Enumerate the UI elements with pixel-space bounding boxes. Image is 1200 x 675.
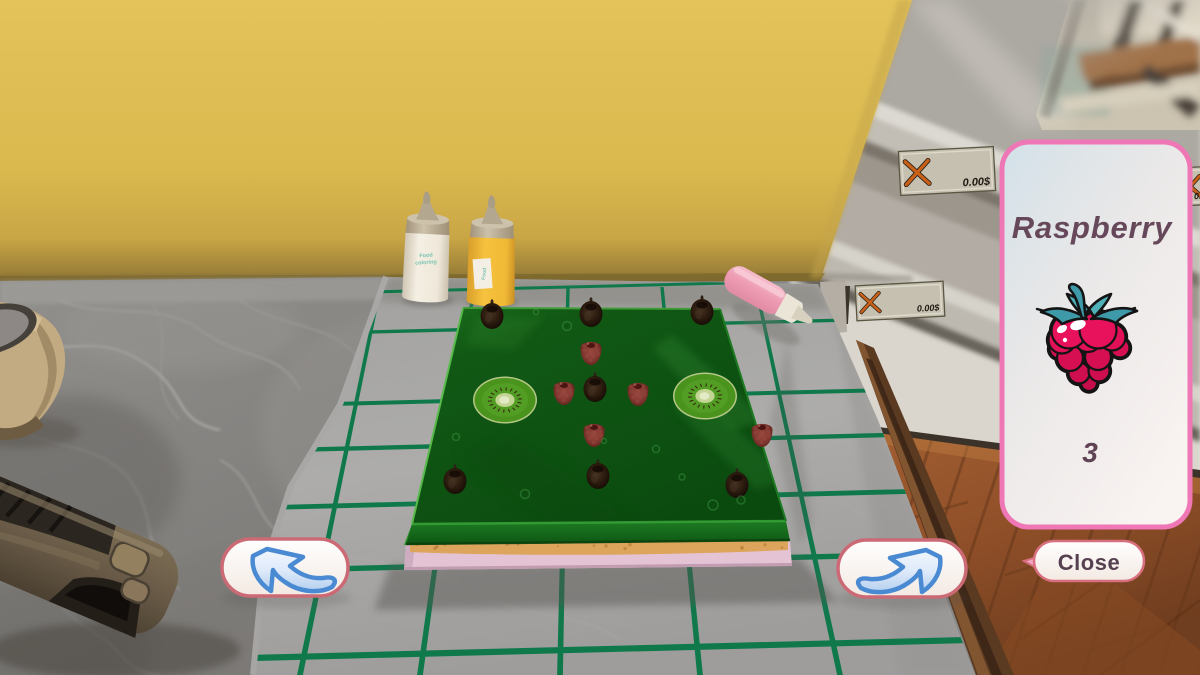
- svg-text:3: 3: [1082, 437, 1098, 468]
- svg-text:0.00$: 0.00$: [917, 302, 941, 313]
- svg-text:Close: Close: [1058, 550, 1120, 575]
- svg-text:Raspberry: Raspberry: [1012, 210, 1174, 245]
- svg-text:0.00$: 0.00$: [962, 176, 991, 189]
- svg-text:Food: Food: [419, 253, 433, 260]
- svg-text:0.00$: 0.00$: [1194, 190, 1200, 201]
- svg-text:Food: Food: [481, 267, 488, 280]
